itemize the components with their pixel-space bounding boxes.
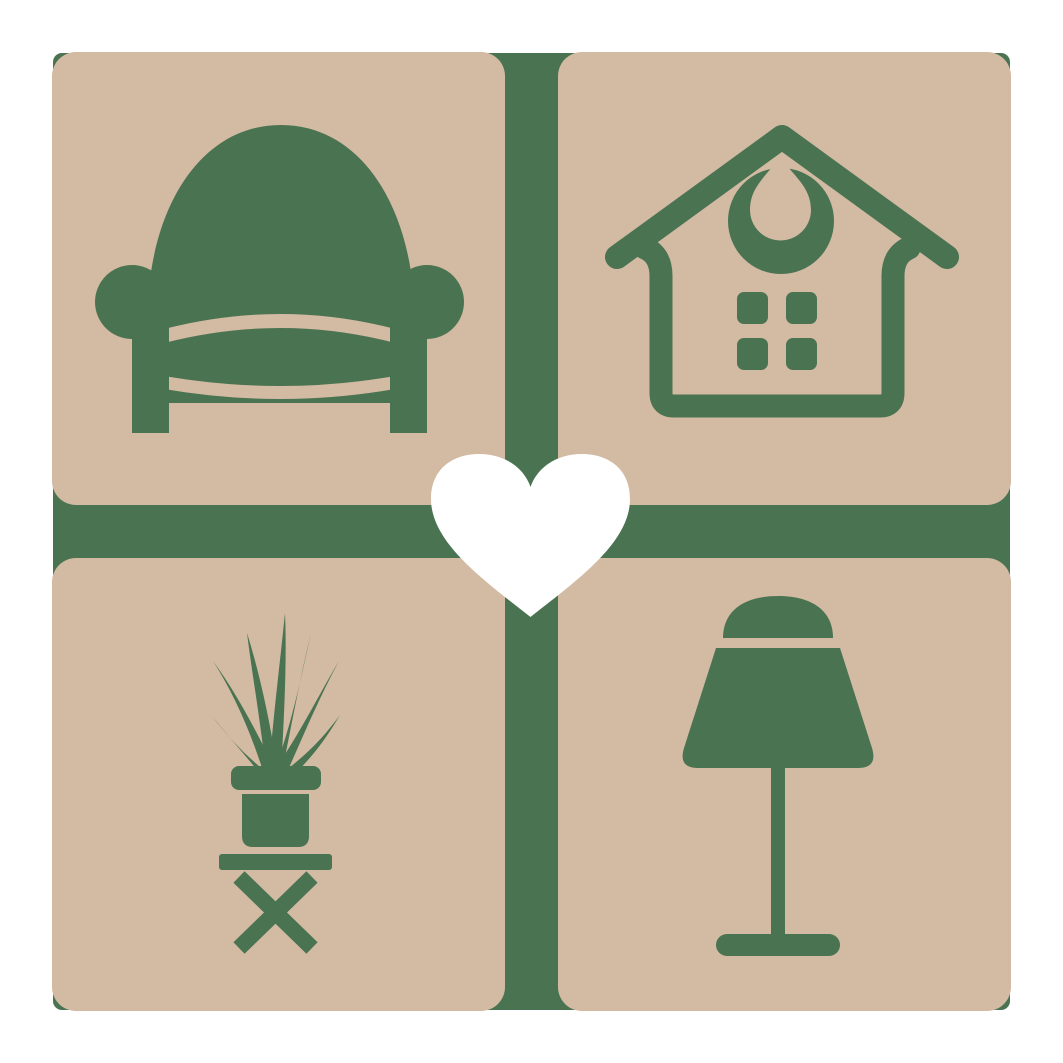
- house-icon: [558, 52, 1011, 505]
- tile-potted-plant: [52, 558, 505, 1011]
- potted-plant-icon: [52, 558, 505, 1011]
- armchair-icon: [52, 52, 505, 505]
- furniture-logo: [0, 0, 1063, 1063]
- table-lamp-icon: [558, 558, 1011, 1011]
- tile-house: [558, 52, 1011, 505]
- heart-icon: [423, 447, 638, 625]
- tile-armchair: [52, 52, 505, 505]
- tile-table-lamp: [558, 558, 1011, 1011]
